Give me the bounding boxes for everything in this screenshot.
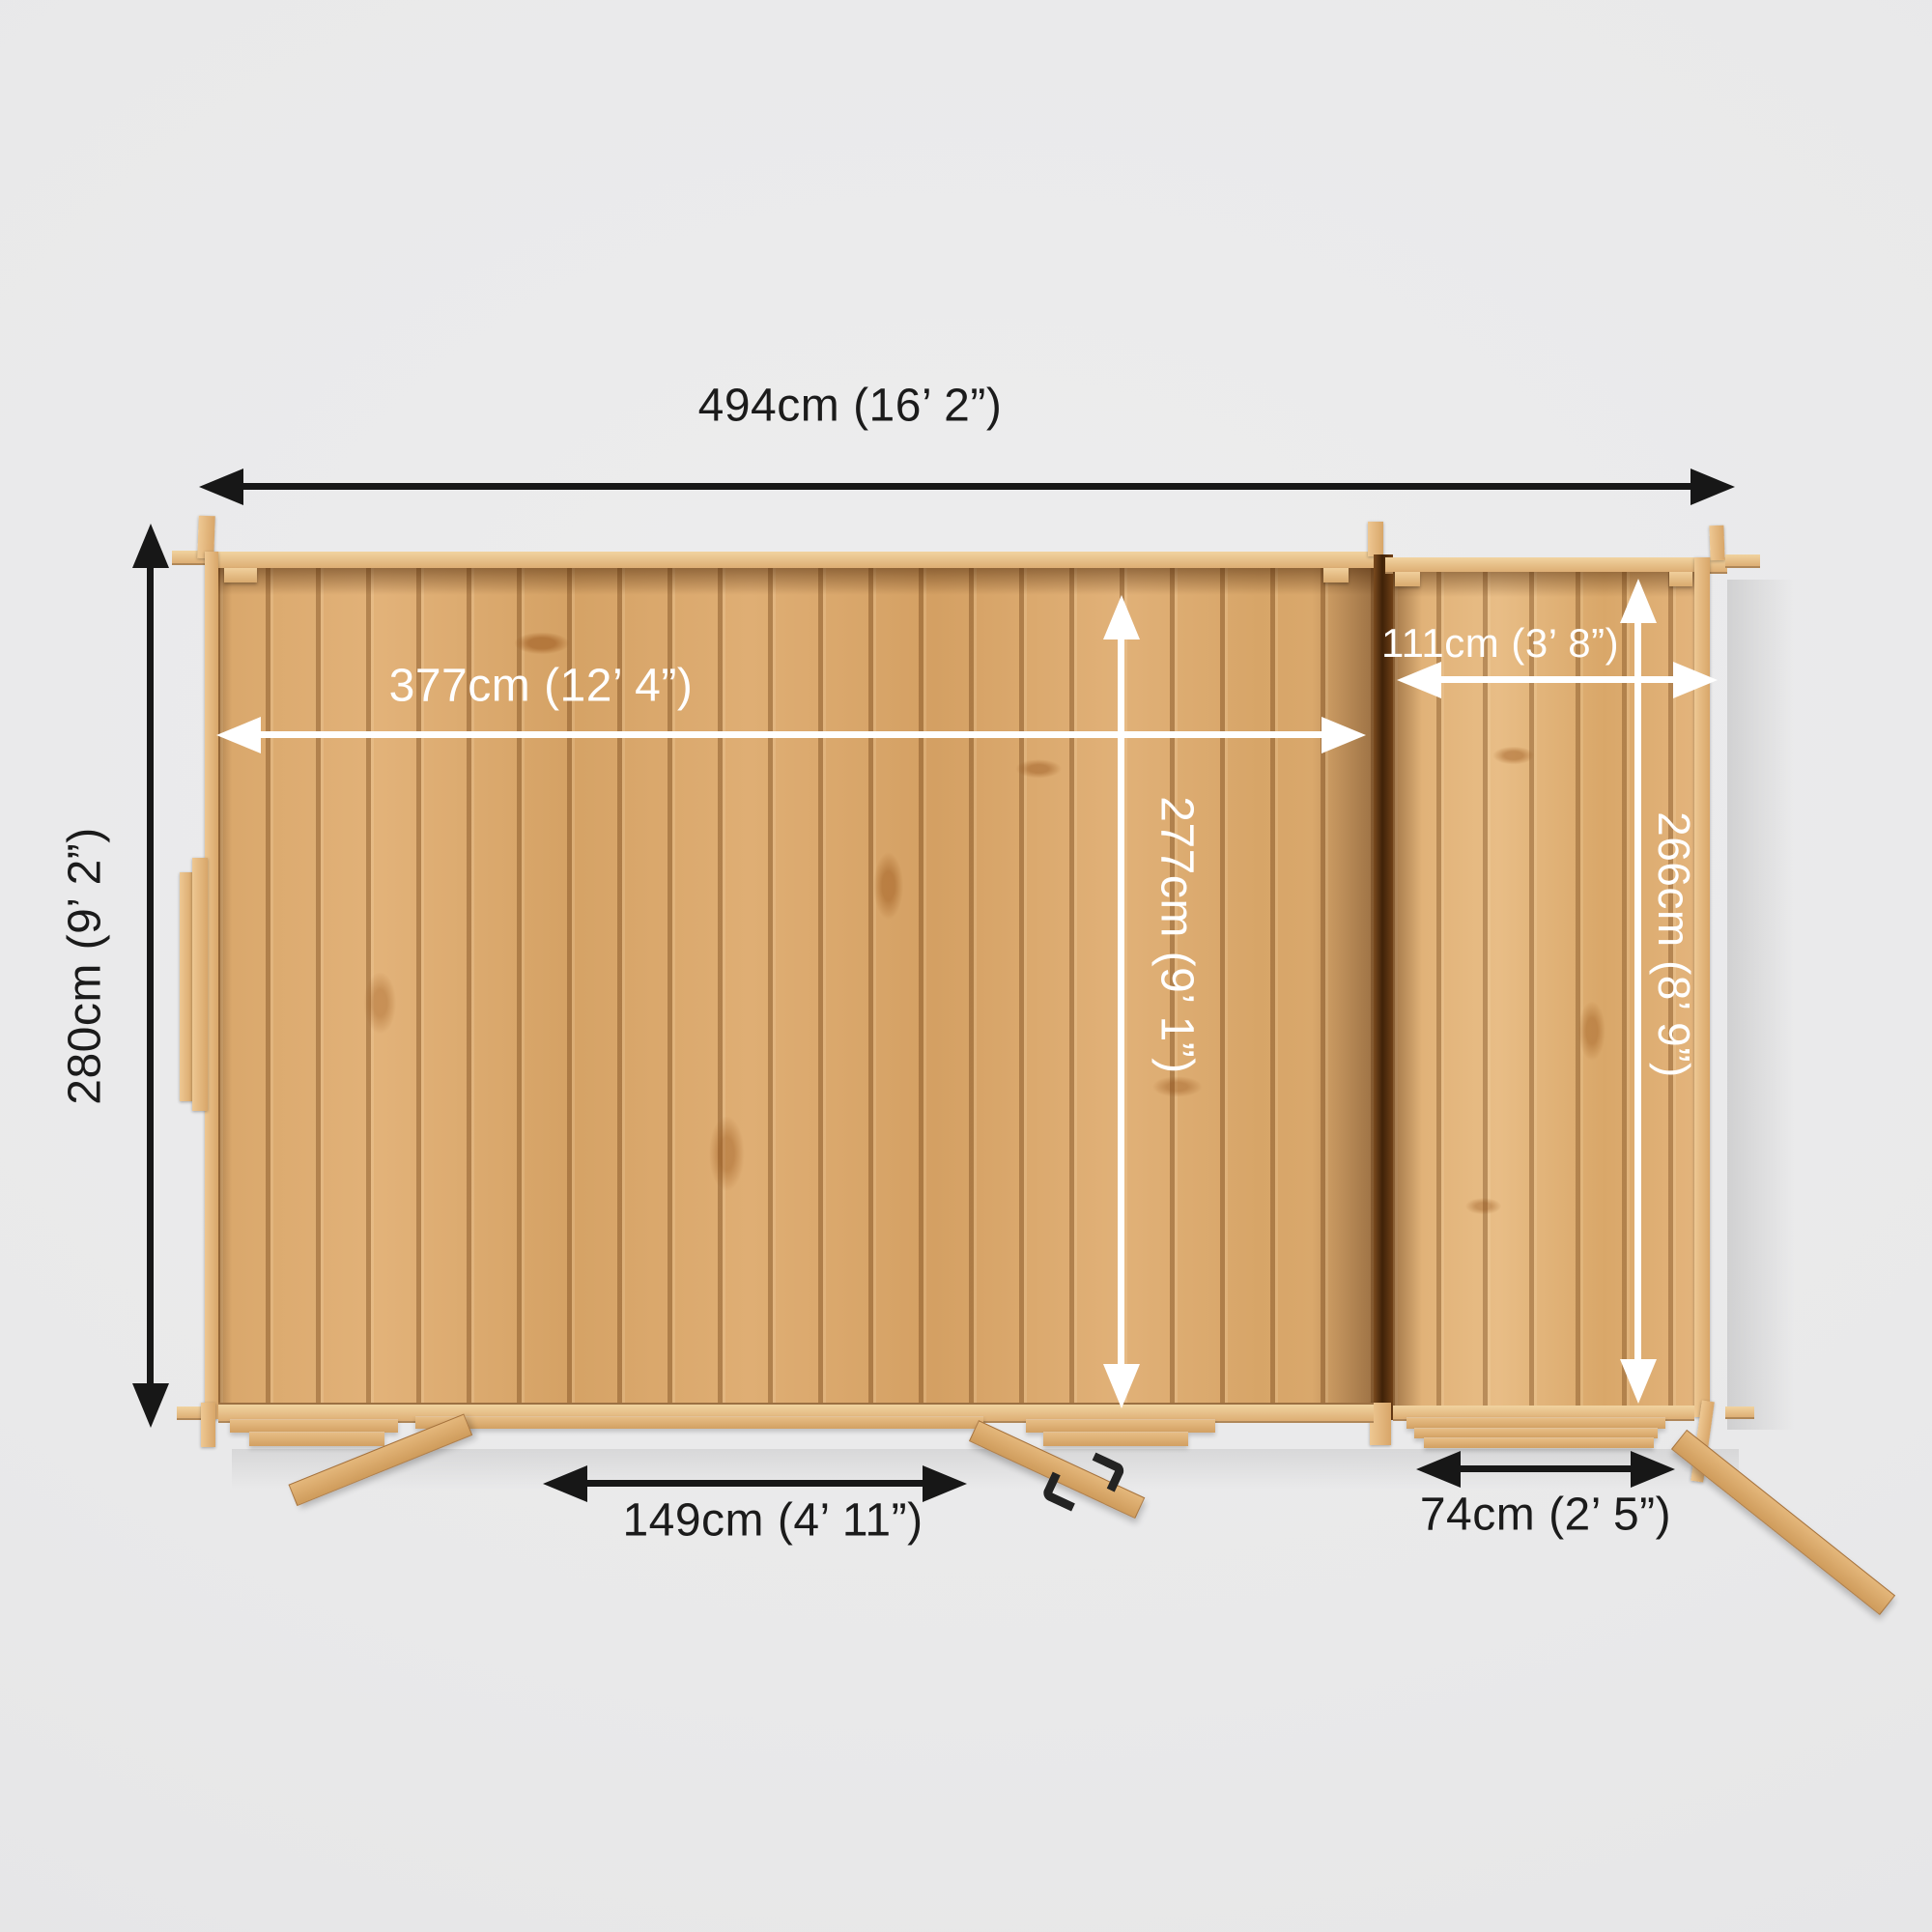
sill-board <box>230 1419 398 1433</box>
roof-purlin-bottom-right <box>1725 1406 1754 1419</box>
partition-wall <box>1374 554 1393 1420</box>
door-handle <box>1040 1472 1083 1512</box>
arrow-head-icon <box>923 1465 967 1502</box>
corner-post-top-right-annex <box>1709 526 1724 561</box>
arrow-head-icon <box>1397 662 1441 698</box>
main-interior-depth-arrow <box>1118 639 1124 1364</box>
overall-width-label: 494cm (16’ 2”) <box>698 380 1003 433</box>
overall-depth-label: 280cm (9’ 2”) <box>59 827 112 1104</box>
arrow-head-icon <box>1673 662 1718 698</box>
main-interior-depth-label: 277cm (9’ 1”) <box>1151 796 1204 1073</box>
annex-sill-board <box>1424 1437 1654 1448</box>
arrow-head-icon <box>1416 1451 1461 1488</box>
overall-depth-arrow <box>147 568 154 1383</box>
annex-interior-width-label: 111cm (3’ 8”) <box>1381 620 1619 667</box>
sill-board <box>249 1432 384 1446</box>
diagram-canvas: 494cm (16’ 2”) 280cm (9’ 2”) 377cm (12’ … <box>0 0 1932 1932</box>
roof-joist-tab <box>1669 572 1692 586</box>
arrow-head-icon <box>1620 1359 1657 1404</box>
annex-door-width-arrow <box>1461 1465 1631 1472</box>
arrow-head-icon <box>1631 1451 1675 1488</box>
overall-width-arrow <box>243 483 1690 490</box>
arrow-head-icon <box>1620 579 1657 623</box>
corner-post-bottom-left <box>201 1403 215 1447</box>
sill-board <box>1043 1432 1188 1446</box>
main-door-width-arrow <box>587 1480 923 1487</box>
annex-door-width-label: 74cm (2’ 5”) <box>1420 1489 1671 1542</box>
arrow-head-icon <box>132 1383 169 1428</box>
arrow-head-icon <box>132 524 169 568</box>
building-side-shadow <box>1727 580 1795 1430</box>
left-window-board-inner <box>192 858 208 1111</box>
main-interior-width-label: 377cm (12’ 4”) <box>389 660 694 713</box>
arrow-head-icon <box>1103 595 1140 639</box>
annex-door-panel <box>1671 1430 1895 1615</box>
roof-purlin-top-right <box>1725 554 1760 568</box>
arrow-head-icon <box>199 469 243 505</box>
roof-joist-tab <box>1395 572 1420 586</box>
main-door-threshold <box>415 1416 983 1429</box>
main-interior-width-arrow <box>261 731 1321 738</box>
left-window-board-outer <box>180 872 193 1101</box>
annex-interior-depth-arrow <box>1634 623 1641 1359</box>
annex-interior-depth-label: 266cm (8’ 9”) <box>1648 811 1700 1078</box>
arrow-head-icon <box>1321 717 1366 753</box>
arrow-head-icon <box>216 717 261 753</box>
arrow-head-icon <box>1103 1364 1140 1408</box>
arrow-head-icon <box>1690 469 1735 505</box>
arrow-head-icon <box>543 1465 587 1502</box>
roof-joist-tab <box>224 568 257 582</box>
roof-joist-tab <box>1323 568 1349 582</box>
corner-post-top-right-main <box>1368 522 1383 556</box>
sill-board <box>1026 1419 1215 1433</box>
main-door-width-label: 149cm (4’ 11”) <box>622 1494 923 1548</box>
